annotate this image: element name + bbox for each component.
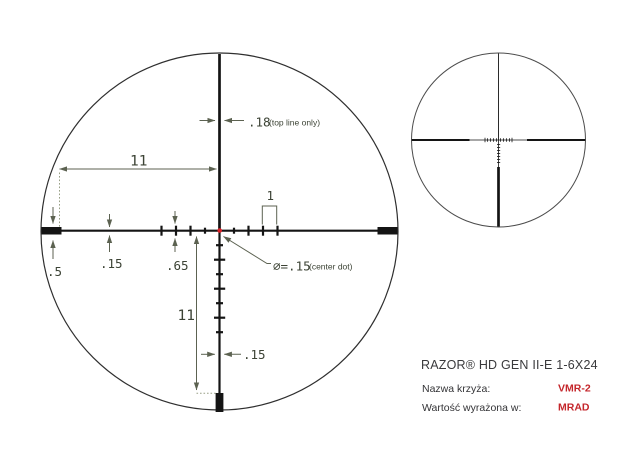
dim-value: ∅=.15 bbox=[273, 259, 311, 274]
dim-mil-spacing: 1 bbox=[262, 188, 276, 225]
product-title: RAZOR® HD GEN II-E 1-6X24 bbox=[421, 358, 598, 372]
dim-tick-height: .65 bbox=[166, 211, 189, 273]
reticle-name-label: Nazwa krzyża: bbox=[422, 383, 490, 395]
dimension-annotations: .18 (top line only) 11 .5 .15 .65 bbox=[47, 115, 353, 394]
product-info: RAZOR® HD GEN II-E 1-6X24 Nazwa krzyża: … bbox=[421, 358, 598, 414]
magnified-reticle-view bbox=[41, 53, 398, 412]
dim-note: (top line only) bbox=[269, 118, 320, 128]
unit-label: Wartość wyrażona w: bbox=[422, 402, 521, 414]
reticle-name-value: VMR-2 bbox=[558, 383, 591, 395]
dim-value: .5 bbox=[47, 264, 62, 279]
unit-value: MRAD bbox=[558, 402, 590, 414]
dim-value: 1 bbox=[267, 188, 275, 203]
dim-line-width: .15 bbox=[100, 214, 123, 271]
dim-value: 11 bbox=[130, 154, 147, 170]
dim-post-height: .5 bbox=[47, 207, 62, 279]
dim-top-line-width: .18 (top line only) bbox=[200, 115, 321, 130]
center-dot bbox=[217, 228, 222, 233]
dim-value: .65 bbox=[166, 258, 189, 273]
dim-note: (center dot) bbox=[309, 262, 353, 272]
dim-value: .15 bbox=[243, 347, 266, 362]
dim-value: 11 bbox=[178, 308, 195, 324]
overview-elevation-ticks bbox=[497, 145, 500, 163]
dim-upper-offset: 11 bbox=[60, 154, 217, 228]
dim-lower-line-width: .15 bbox=[201, 347, 266, 362]
reticle-spec-page: .18 (top line only) 11 .5 .15 .65 bbox=[0, 0, 628, 471]
dim-value: .15 bbox=[100, 256, 123, 271]
reticle-diagram: .18 (top line only) 11 .5 .15 .65 bbox=[0, 0, 628, 471]
leader-line bbox=[224, 237, 272, 264]
dim-center-dot: ∅=.15 (center dot) bbox=[224, 237, 353, 274]
dim-value: .18 bbox=[248, 115, 271, 130]
reticle-overview bbox=[412, 53, 586, 227]
bracket bbox=[262, 206, 276, 225]
